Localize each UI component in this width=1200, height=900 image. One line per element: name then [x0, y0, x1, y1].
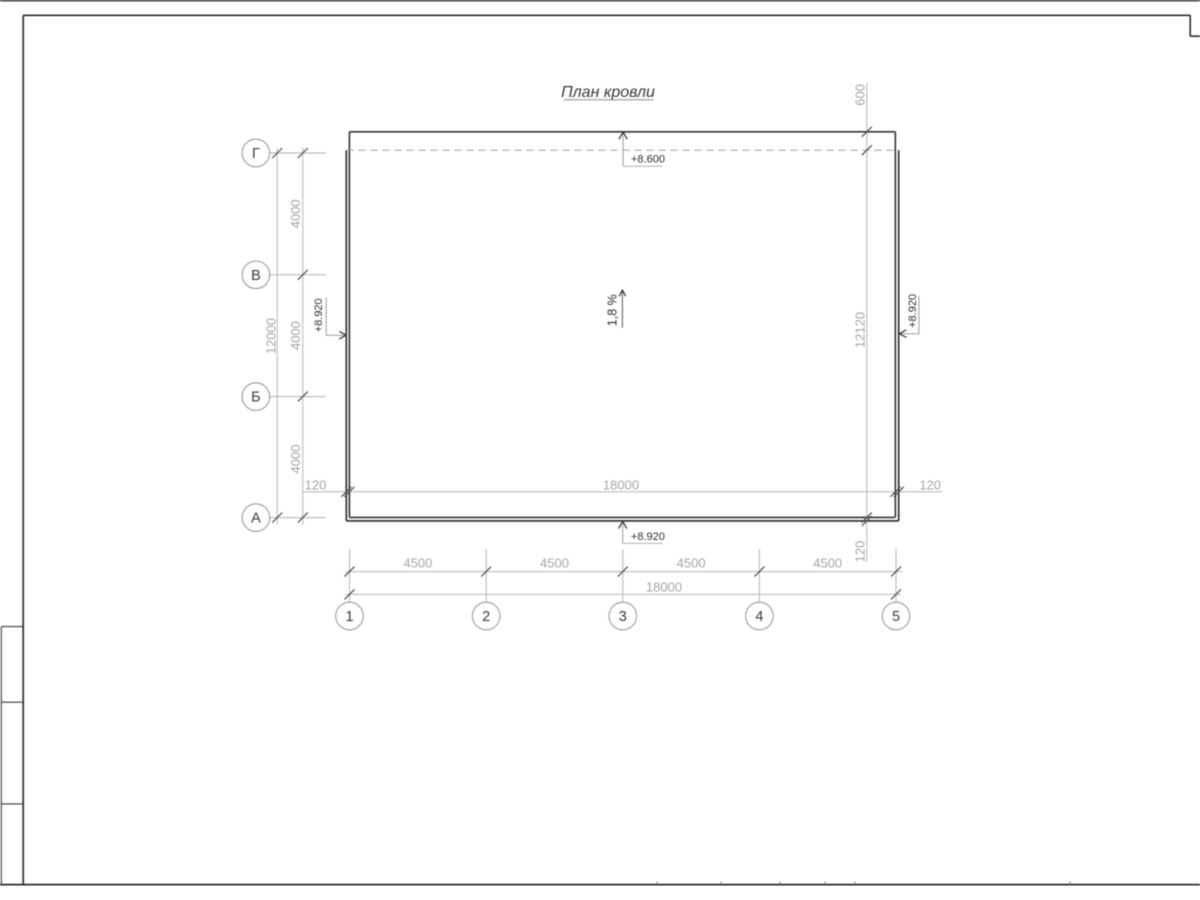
svg-text:4500: 4500 — [540, 555, 569, 570]
svg-text:+8.920: +8.920 — [631, 531, 665, 543]
svg-text:План кровли: План кровли — [561, 84, 655, 101]
svg-text:5: 5 — [892, 609, 900, 625]
svg-text:+8.920: +8.920 — [313, 298, 325, 332]
svg-text:12120: 12120 — [853, 312, 868, 348]
svg-text:4500: 4500 — [677, 555, 706, 570]
svg-text:+8.600: +8.600 — [631, 153, 665, 165]
svg-text:Г: Г — [252, 146, 260, 162]
svg-text:4: 4 — [755, 609, 763, 625]
svg-text:+8.920: +8.920 — [907, 294, 919, 328]
svg-text:В: В — [251, 268, 261, 284]
svg-text:4000: 4000 — [288, 445, 303, 474]
svg-text:18000: 18000 — [603, 477, 639, 492]
svg-text:600: 600 — [853, 84, 868, 106]
svg-text:Б: Б — [251, 390, 261, 406]
svg-text:1: 1 — [345, 609, 353, 625]
svg-text:12000: 12000 — [264, 318, 279, 354]
svg-text:4500: 4500 — [403, 555, 432, 570]
svg-text:1,8 %: 1,8 % — [606, 294, 620, 326]
svg-text:4000: 4000 — [288, 321, 303, 350]
svg-text:120: 120 — [919, 477, 941, 492]
svg-text:А: А — [251, 511, 261, 527]
svg-text:120: 120 — [305, 477, 327, 492]
svg-text:2: 2 — [482, 609, 490, 625]
svg-text:3: 3 — [619, 609, 627, 625]
svg-text:4000: 4000 — [288, 199, 303, 228]
svg-text:4500: 4500 — [813, 555, 842, 570]
svg-text:18000: 18000 — [646, 580, 682, 595]
svg-text:120: 120 — [853, 541, 868, 563]
